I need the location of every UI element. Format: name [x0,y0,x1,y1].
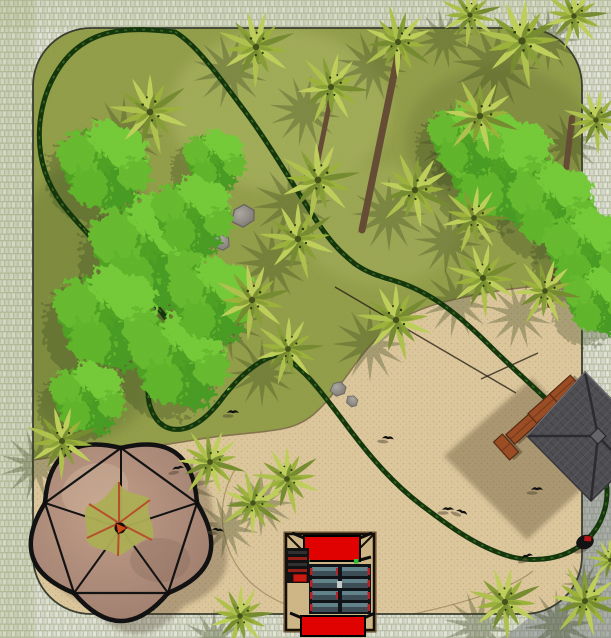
site-plan-rendering [0,0,611,638]
grain-overlay [0,0,611,638]
